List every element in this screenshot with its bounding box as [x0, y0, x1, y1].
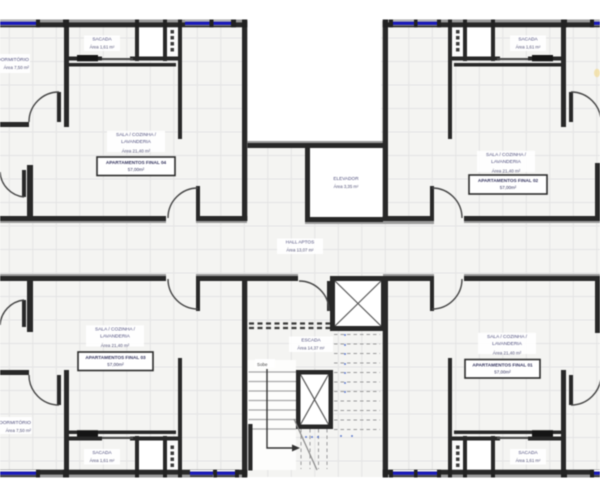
svg-text:HALL APTOS: HALL APTOS — [286, 240, 314, 245]
svg-text:DORMITÓRIO: DORMITÓRIO — [0, 419, 31, 426]
svg-text:SALA / COZINHA /: SALA / COZINHA / — [486, 152, 527, 158]
svg-text:57,00m²: 57,00m² — [500, 185, 517, 190]
svg-text:57,00m²: 57,00m² — [128, 167, 145, 172]
svg-text:Área 7,50 m²: Área 7,50 m² — [6, 428, 32, 433]
svg-text:Área 21,40 m²: Área 21,40 m² — [122, 147, 151, 153]
svg-text:Sobe: Sobe — [257, 362, 268, 367]
svg-text:Área 21,40 m²: Área 21,40 m² — [493, 349, 522, 355]
svg-text:LAVANDERIA: LAVANDERIA — [121, 139, 151, 145]
svg-text:SACADA: SACADA — [518, 450, 538, 455]
svg-text:SALA / COZINHA /: SALA / COZINHA / — [95, 327, 136, 333]
svg-text:SALA / COZINHA /: SALA / COZINHA / — [487, 334, 528, 340]
svg-text:ESCADA: ESCADA — [301, 338, 321, 343]
svg-text:57,00m²: 57,00m² — [107, 362, 124, 367]
svg-text:DORMITÓRIO: DORMITÓRIO — [0, 56, 29, 63]
svg-text:SALA / COZINHA /: SALA / COZINHA / — [116, 132, 157, 138]
svg-text:LAVANDERIA: LAVANDERIA — [491, 159, 521, 165]
svg-text:Área 14,37 m²: Área 14,37 m² — [297, 346, 325, 351]
svg-text:SACADA: SACADA — [518, 37, 538, 42]
svg-text:Área 1,61 m²: Área 1,61 m² — [516, 458, 541, 463]
svg-text:APARTAMENTOS FINAL 01: APARTAMENTOS FINAL 01 — [472, 363, 533, 368]
svg-text:SACADA: SACADA — [92, 37, 112, 42]
svg-text:Área 1,61 m²: Área 1,61 m² — [90, 458, 115, 463]
svg-text:LAVANDERIA: LAVANDERIA — [492, 341, 522, 347]
svg-text:APARTAMENTOS FINAL 02: APARTAMENTOS FINAL 02 — [478, 178, 539, 183]
svg-text:Área 13,07 m²: Área 13,07 m² — [286, 248, 314, 253]
svg-text:Área 1,61 m²: Área 1,61 m² — [516, 45, 541, 50]
svg-text:LAVANDERIA: LAVANDERIA — [100, 334, 130, 340]
svg-text:Área 1,61 m²: Área 1,61 m² — [90, 45, 115, 50]
svg-text:APARTAMENTOS FINAL 03: APARTAMENTOS FINAL 03 — [85, 355, 146, 360]
svg-text:Área 3,35 m²: Área 3,35 m² — [334, 184, 359, 189]
svg-text:Área 21,40 m²: Área 21,40 m² — [101, 342, 130, 348]
svg-text:APARTAMENTOS FINAL 04: APARTAMENTOS FINAL 04 — [106, 160, 167, 165]
svg-text:Área 7,50 m²: Área 7,50 m² — [4, 65, 30, 70]
svg-text:57,00m²: 57,00m² — [494, 370, 511, 375]
svg-text:Área 21,40 m²: Área 21,40 m² — [492, 167, 521, 173]
svg-text:ELEVADOR: ELEVADOR — [333, 176, 359, 181]
svg-text:SACADA: SACADA — [92, 450, 112, 455]
